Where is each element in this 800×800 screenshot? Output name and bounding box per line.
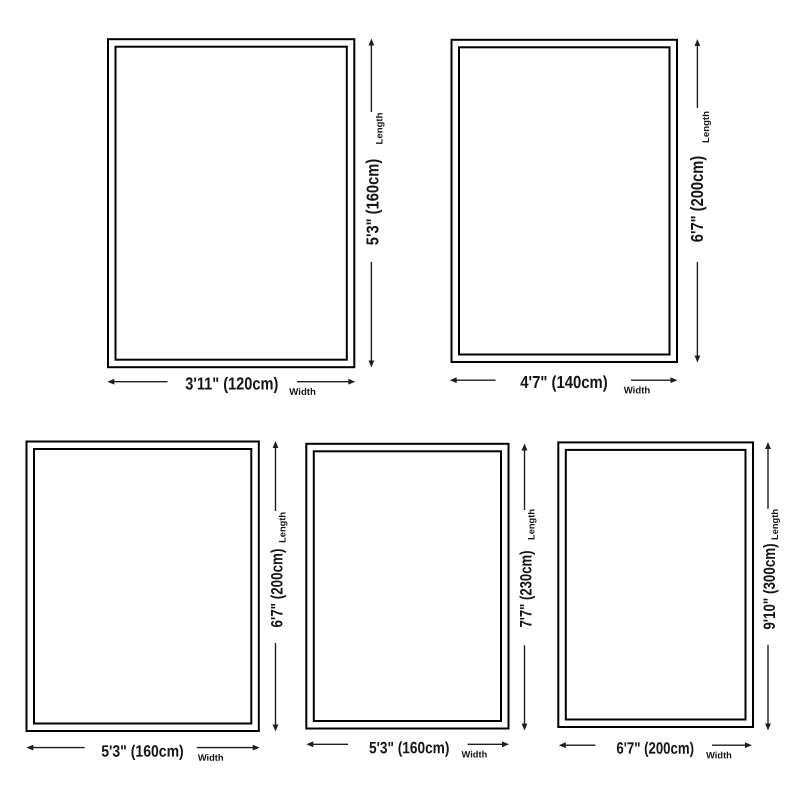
svg-text:6'7" (200cm): 6'7" (200cm): [616, 740, 694, 758]
svg-text:Length: Length: [374, 112, 385, 144]
svg-text:Width: Width: [462, 749, 488, 759]
svg-text:5'3" (160cm): 5'3" (160cm): [369, 739, 449, 757]
svg-text:Length: Length: [527, 509, 537, 540]
svg-text:Length: Length: [701, 111, 712, 143]
svg-text:Length: Length: [278, 512, 288, 543]
svg-text:Width: Width: [198, 753, 224, 763]
svg-text:9'10" (300cm): 9'10" (300cm): [761, 543, 779, 629]
svg-text:5'3" (160cm): 5'3" (160cm): [362, 159, 382, 245]
svg-text:3'11" (120cm): 3'11" (120cm): [185, 373, 278, 393]
svg-text:Width: Width: [624, 385, 651, 396]
svg-text:7'7" (230cm): 7'7" (230cm): [518, 551, 536, 628]
svg-text:Width: Width: [289, 387, 316, 398]
svg-text:6'7" (200cm): 6'7" (200cm): [269, 549, 287, 628]
svg-text:Length: Length: [770, 509, 780, 540]
svg-text:Width: Width: [706, 750, 732, 760]
svg-text:5'3" (160cm): 5'3" (160cm): [101, 743, 184, 761]
svg-text:6'7" (200cm): 6'7" (200cm): [687, 156, 707, 242]
svg-text:4'7" (140cm): 4'7" (140cm): [520, 372, 607, 392]
